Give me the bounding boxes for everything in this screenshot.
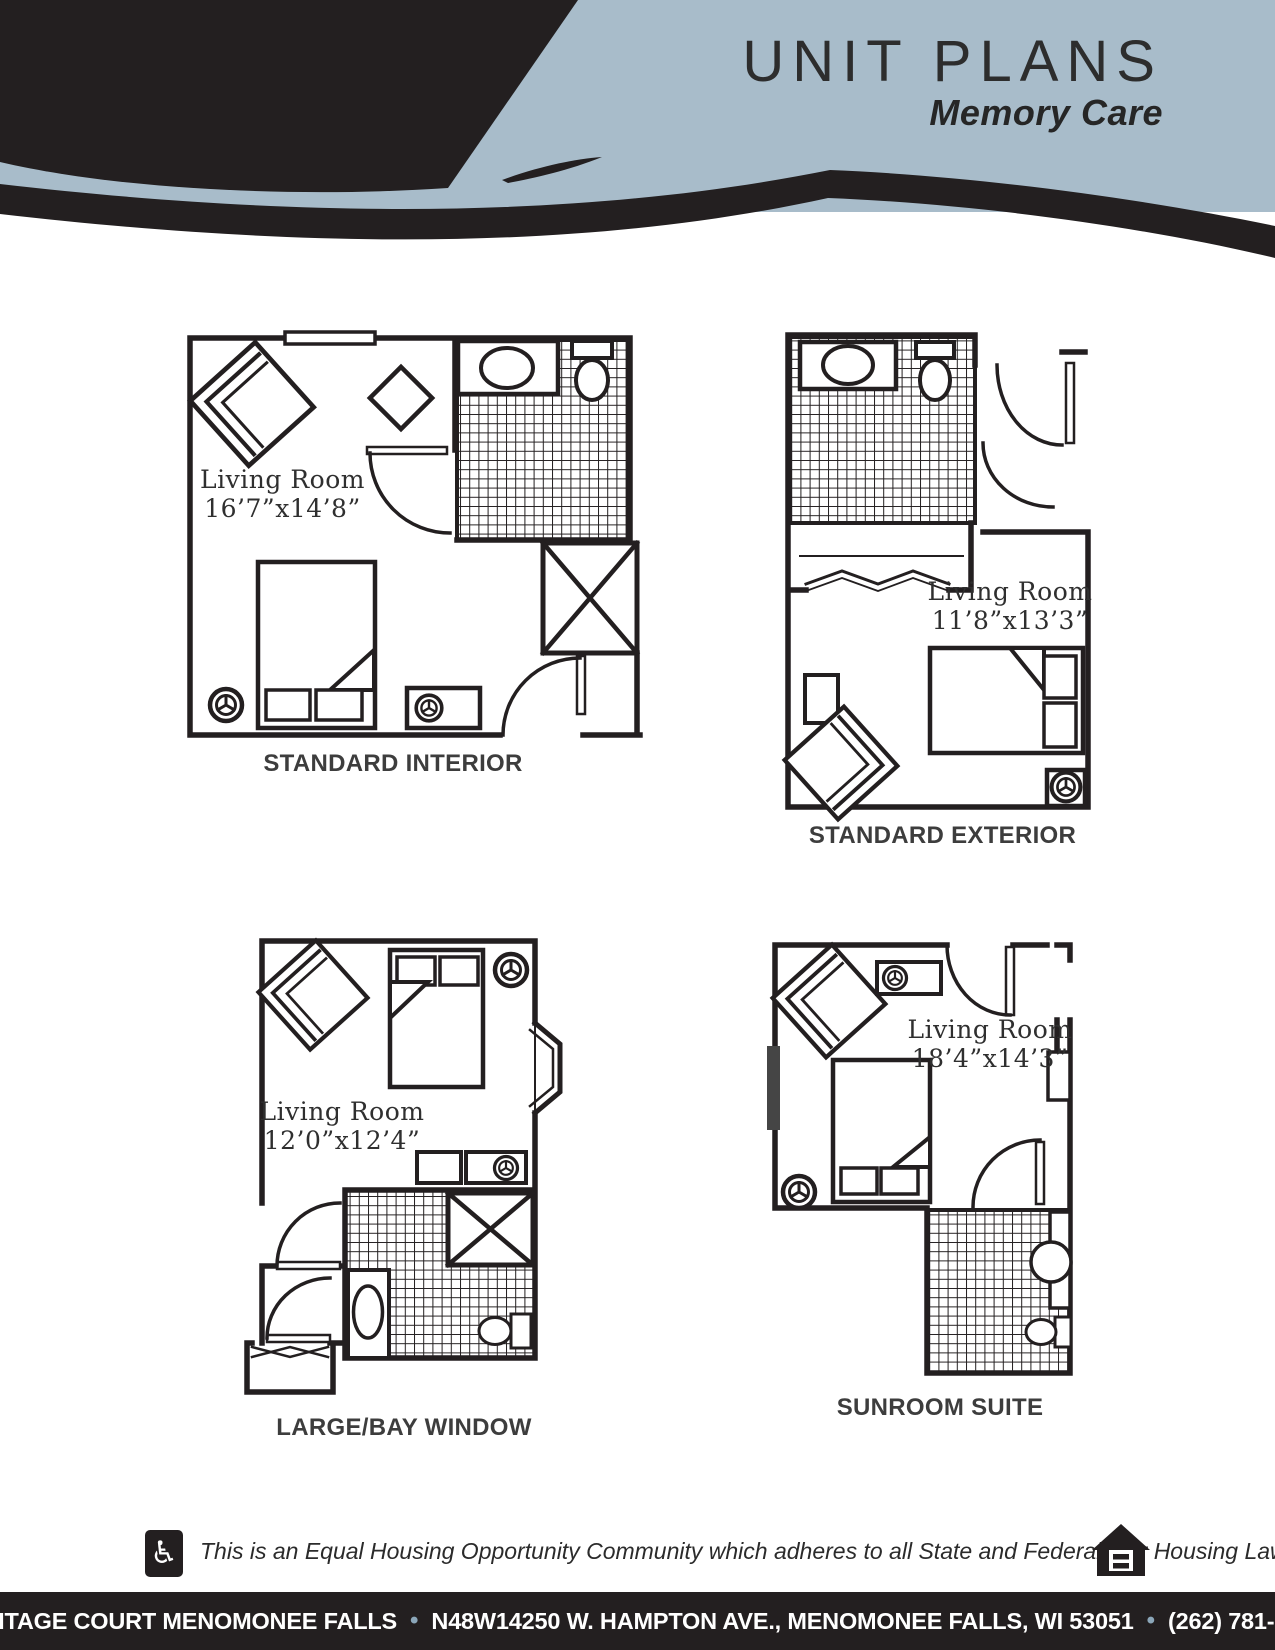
bullet-separator: • bbox=[410, 1607, 418, 1635]
toilet-icon bbox=[916, 342, 954, 400]
bullet-separator: • bbox=[1147, 1607, 1155, 1635]
window bbox=[767, 1046, 780, 1130]
floor-plan-large-bay-window bbox=[247, 940, 560, 1392]
entry-door bbox=[503, 656, 585, 735]
room-label-large-bay-window: Living Room 12’0”x12’4” bbox=[252, 1098, 432, 1155]
toilet-icon bbox=[572, 341, 612, 400]
floor-plan-sunroom-suite bbox=[767, 945, 1071, 1373]
wheelchair-icon: ♿ bbox=[145, 1530, 183, 1577]
phone-number: (262) 781-6930 bbox=[1168, 1608, 1275, 1635]
armchair-icon bbox=[773, 945, 886, 1058]
entry-door bbox=[267, 1278, 330, 1342]
window bbox=[285, 332, 375, 344]
ceiling-fan-icon bbox=[783, 1176, 815, 1208]
closet bbox=[448, 1193, 533, 1265]
sink-icon bbox=[800, 342, 896, 389]
caption-large-bay-window: LARGE/BAY WINDOW bbox=[244, 1414, 564, 1442]
room-label-standard-exterior: Living Room 11’8”x13’3” bbox=[915, 578, 1105, 635]
room-label-text: Living Room bbox=[195, 466, 370, 495]
wheelchair-glyph: ♿ bbox=[150, 1538, 178, 1569]
bed bbox=[930, 648, 1083, 753]
bathroom-door bbox=[973, 1140, 1044, 1207]
community-name: HERITAGE COURT MENOMONEE FALLS bbox=[0, 1608, 397, 1635]
room-label-text: Living Room bbox=[900, 1016, 1080, 1045]
ceiling-fan-icon bbox=[210, 689, 242, 721]
interior-door bbox=[277, 1203, 340, 1269]
ceiling-fan-icon bbox=[1052, 773, 1081, 802]
page-subtitle: Memory Care bbox=[929, 92, 1163, 134]
ceiling-fan-icon bbox=[883, 966, 906, 989]
closet bbox=[543, 543, 637, 653]
bifold-door bbox=[252, 1347, 328, 1357]
toilet-icon bbox=[479, 1314, 531, 1348]
room-dimensions: 12’0”x12’4” bbox=[252, 1127, 432, 1156]
equal-housing-row: ♿ This is an Equal Housing Opportunity C… bbox=[0, 1522, 1275, 1582]
caption-standard-exterior: STANDARD EXTERIOR bbox=[790, 822, 1095, 850]
room-dimensions: 11’8”x13’3” bbox=[915, 607, 1105, 636]
sink-icon bbox=[348, 1270, 389, 1358]
unit-plans-page: UNIT PLANS Memory Care Living Room 16’7”… bbox=[0, 0, 1275, 1650]
page-title: UNIT PLANS bbox=[742, 28, 1163, 95]
toilet-icon bbox=[1026, 1317, 1071, 1347]
room-label-text: Living Room bbox=[252, 1098, 432, 1127]
bay-window bbox=[530, 1023, 560, 1113]
room-dimensions: 18’4”x14’3” bbox=[900, 1045, 1080, 1074]
bathroom-door bbox=[367, 447, 450, 533]
ceiling-fan-icon bbox=[495, 954, 527, 986]
entry-doors bbox=[983, 363, 1074, 507]
address-bar: HERITAGE COURT MENOMONEE FALLS • N48W142… bbox=[0, 1592, 1275, 1650]
room-label-standard-interior: Living Room 16’7”x14’8” bbox=[195, 466, 370, 523]
sink-icon bbox=[458, 341, 558, 394]
room-label-sunroom-suite: Living Room 18’4”x14’3” bbox=[900, 1016, 1080, 1073]
armchair-icon bbox=[190, 342, 313, 465]
entry-door bbox=[947, 945, 1014, 1015]
caption-standard-interior: STANDARD INTERIOR bbox=[233, 750, 553, 778]
ceiling-fan-icon bbox=[416, 695, 442, 721]
equal-housing-logo bbox=[1092, 1524, 1150, 1578]
side-table bbox=[370, 367, 432, 429]
room-dimensions: 16’7”x14’8” bbox=[195, 495, 370, 524]
bed bbox=[258, 562, 375, 728]
bed bbox=[833, 1060, 930, 1202]
equal-housing-notice: This is an Equal Housing Opportunity Com… bbox=[200, 1538, 1085, 1565]
bed bbox=[390, 950, 483, 1087]
armchair-icon bbox=[258, 940, 367, 1049]
side-table bbox=[417, 1152, 461, 1183]
caption-sunroom-suite: SUNROOM SUITE bbox=[790, 1394, 1090, 1422]
armchair-icon bbox=[785, 707, 898, 820]
room-label-text: Living Room bbox=[915, 578, 1105, 607]
floor-plan-standard-interior bbox=[190, 332, 640, 735]
ceiling-fan-icon bbox=[494, 1156, 517, 1179]
street-address: N48W14250 W. HAMPTON AVE., MENOMONEE FAL… bbox=[431, 1608, 1133, 1635]
